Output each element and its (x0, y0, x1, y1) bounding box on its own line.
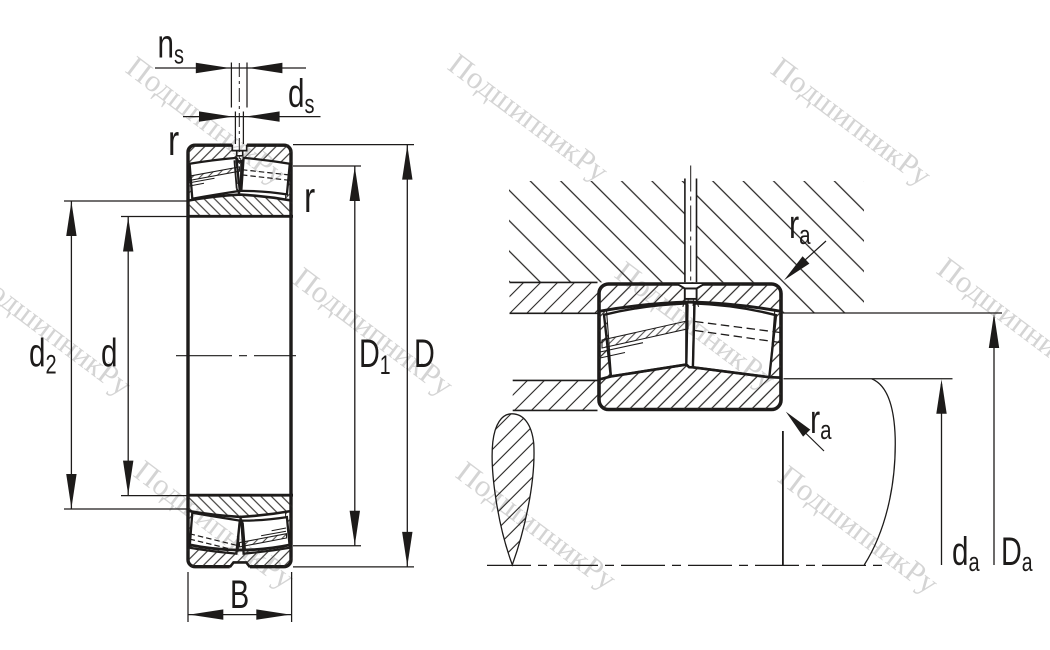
svg-text:Da: Da (1001, 529, 1033, 576)
svg-text:ПодшипникРу: ПодшипникРу (772, 458, 946, 601)
svg-text:ПодшипникРу: ПодшипникРу (450, 454, 624, 597)
svg-text:ПодшипникРу: ПодшипникРу (931, 250, 1050, 393)
svg-text:da: da (952, 530, 980, 578)
svg-text:ПодшипникРу: ПодшипникРу (765, 50, 939, 193)
svg-text:r: r (304, 174, 315, 222)
svg-text:ds: ds (288, 72, 315, 120)
svg-text:r: r (168, 117, 179, 165)
svg-text:B: B (230, 572, 249, 617)
svg-text:ns: ns (158, 22, 185, 70)
svg-text:ПодшипникРу: ПодшипникРу (442, 46, 616, 189)
svg-text:ra: ra (810, 397, 832, 446)
svg-text:ПодшипникРу: ПодшипникРу (0, 260, 139, 403)
